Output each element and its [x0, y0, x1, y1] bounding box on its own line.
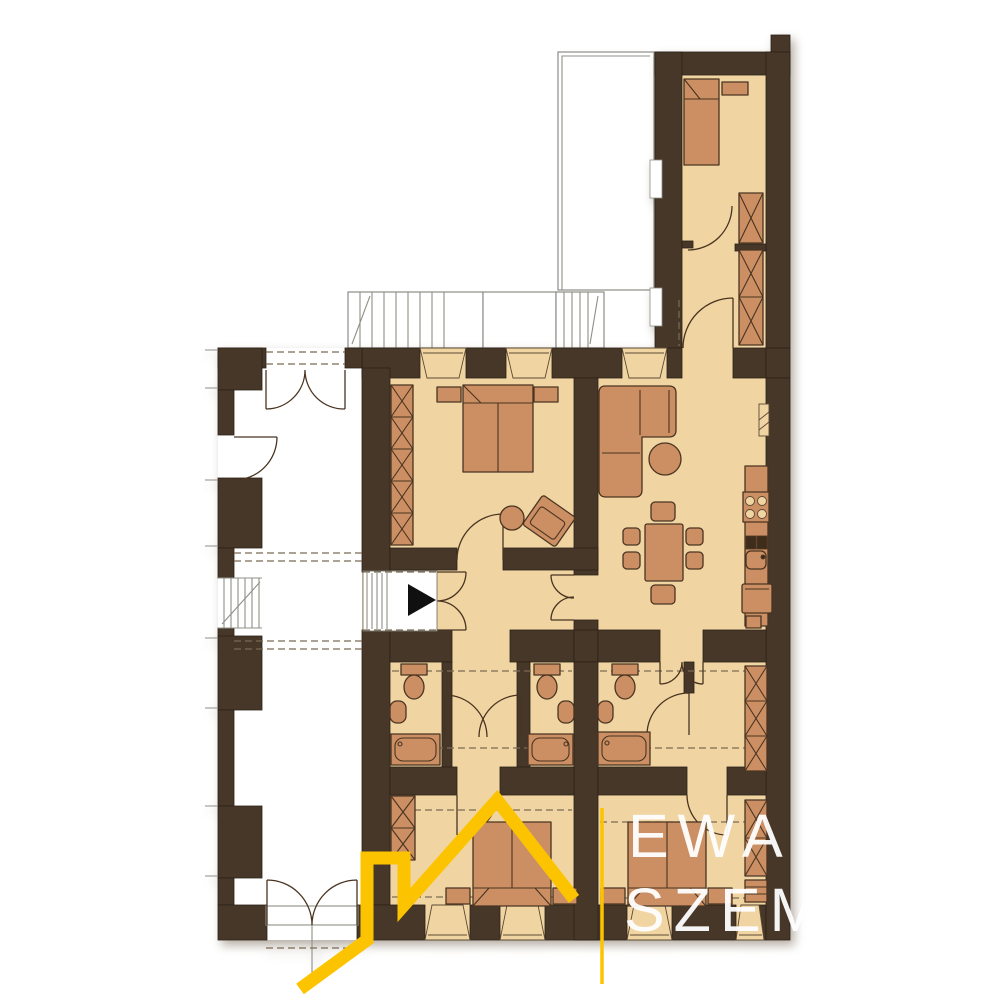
wardrobe [391, 796, 415, 860]
side-table [500, 506, 524, 530]
watermark-text-line2: SZEM [624, 876, 829, 944]
wardrobe [745, 666, 767, 771]
terrace-and-exterior-stairs [348, 52, 654, 348]
fridge [742, 584, 772, 613]
wardrobe [739, 193, 763, 345]
vent-niche [759, 404, 769, 436]
floor-plan-page: EWA SZEM [0, 0, 1000, 1000]
stove [743, 492, 769, 522]
coffee-table [649, 443, 681, 475]
watermark-text-line1: EWA [628, 802, 792, 870]
wardrobe [391, 385, 413, 545]
desk [722, 82, 748, 95]
entrance-marker [363, 571, 437, 631]
kitchen-unit [742, 466, 772, 628]
single-bed [684, 79, 719, 165]
floor-plan-canvas: EWA SZEM [0, 0, 1000, 1000]
